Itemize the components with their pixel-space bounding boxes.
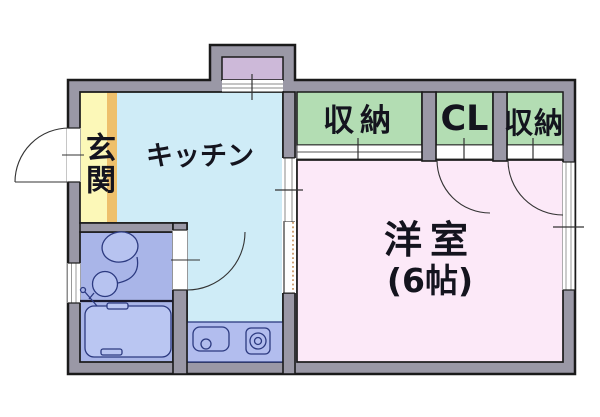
wall-kitchen-room-lower — [283, 293, 295, 374]
genkan-area — [80, 92, 107, 223]
western-room-area — [297, 160, 563, 362]
open-passage — [282, 222, 296, 293]
wall-bathroom-top — [80, 223, 173, 232]
wall-kitchen-room-upper — [283, 92, 295, 158]
entrance-door-arc — [15, 128, 69, 182]
storage-right-area — [507, 92, 563, 145]
bathtub-handle-top — [107, 303, 128, 309]
bathtub-handle-bottom — [101, 349, 122, 355]
entrance-door — [15, 128, 84, 182]
wall-stub-1 — [422, 92, 436, 161]
window-right-gap — [563, 162, 575, 290]
floor-plan: 玄関 キッチン 収納 CL 収納 洋室 (6帖) — [0, 0, 600, 417]
genkan-step — [107, 92, 117, 223]
bathtub — [85, 306, 171, 357]
storage-left-area — [297, 92, 422, 145]
wall-stub-2 — [493, 92, 507, 161]
hand-basin — [93, 272, 118, 297]
window-bath — [68, 263, 81, 303]
closet-area — [436, 92, 493, 145]
storage-right-opening — [507, 145, 563, 159]
floor-plan-drawing — [0, 0, 600, 417]
window-bath-gap — [68, 263, 81, 303]
